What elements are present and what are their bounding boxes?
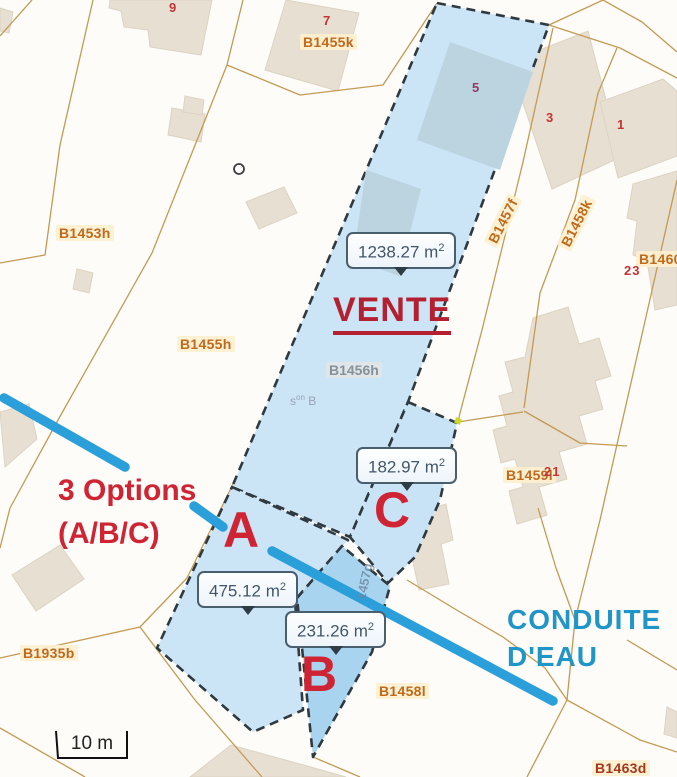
area-sup: 2 (439, 457, 445, 469)
area-value: 1238.27 m (358, 243, 438, 262)
section-note: son B (290, 393, 316, 408)
parcel-number-1: 1 (617, 117, 625, 132)
parcel-label-b1455h: B1455h (177, 336, 235, 352)
area-sup: 2 (280, 581, 286, 593)
parcel-number-7: 7 (323, 13, 331, 28)
parcel-label-b1463d: B1463d (592, 760, 650, 776)
option-letter-c: C (374, 486, 410, 534)
parcel-number-23: 23 (624, 263, 640, 278)
scale-bar-label: 10 m (57, 733, 127, 755)
vente-annotation: VENTE (333, 291, 451, 335)
parcel-label-b1455k: B1455k (300, 34, 357, 50)
conduite-caption-line1: CONDUITE (507, 604, 661, 636)
parcel-number-3: 3 (546, 110, 554, 125)
parcel-label-b1453h: B1453h (56, 225, 114, 241)
area-sup: 2 (368, 621, 374, 633)
parcel-label-b1460: B1460 (636, 251, 677, 267)
parcel-label-b1935b: B1935b (20, 645, 78, 661)
section-note-rest: B (305, 394, 316, 408)
tooltip-pointer (241, 606, 255, 615)
area-tooltip-a: 475.12 m2 (197, 571, 298, 608)
area-value: 231.26 m (297, 622, 368, 641)
area-tooltip-b: 231.26 m2 (285, 611, 386, 648)
parcel-number-5: 5 (472, 80, 480, 95)
cadastre-map-canvas[interactable]: B1453h B1455k B1455h B1456h B1457f B1458… (0, 0, 677, 777)
area-sup: 2 (438, 242, 444, 254)
option-letter-b: B (301, 650, 337, 698)
parcel-number-21: 21 (544, 464, 560, 479)
tooltip-pointer (394, 267, 408, 276)
section-note-sup: on (296, 393, 305, 402)
parcel-label-b1458l: B1458l (376, 683, 429, 699)
conduite-caption-line2: D'EAU (507, 641, 598, 673)
options-annotation-line2: (A/B/C) (58, 517, 160, 551)
options-annotation-line1: 3 Options (58, 474, 196, 508)
parcel-number-9: 9 (169, 0, 177, 15)
area-value: 475.12 m (209, 582, 280, 601)
area-tooltip-c: 182.97 m2 (356, 447, 457, 484)
option-letter-a: A (223, 506, 259, 554)
parcel-label-b1456h: B1456h (326, 362, 382, 378)
survey-point-marker (234, 164, 244, 174)
area-value: 182.97 m (368, 458, 439, 477)
area-tooltip-main: 1238.27 m2 (346, 232, 456, 269)
